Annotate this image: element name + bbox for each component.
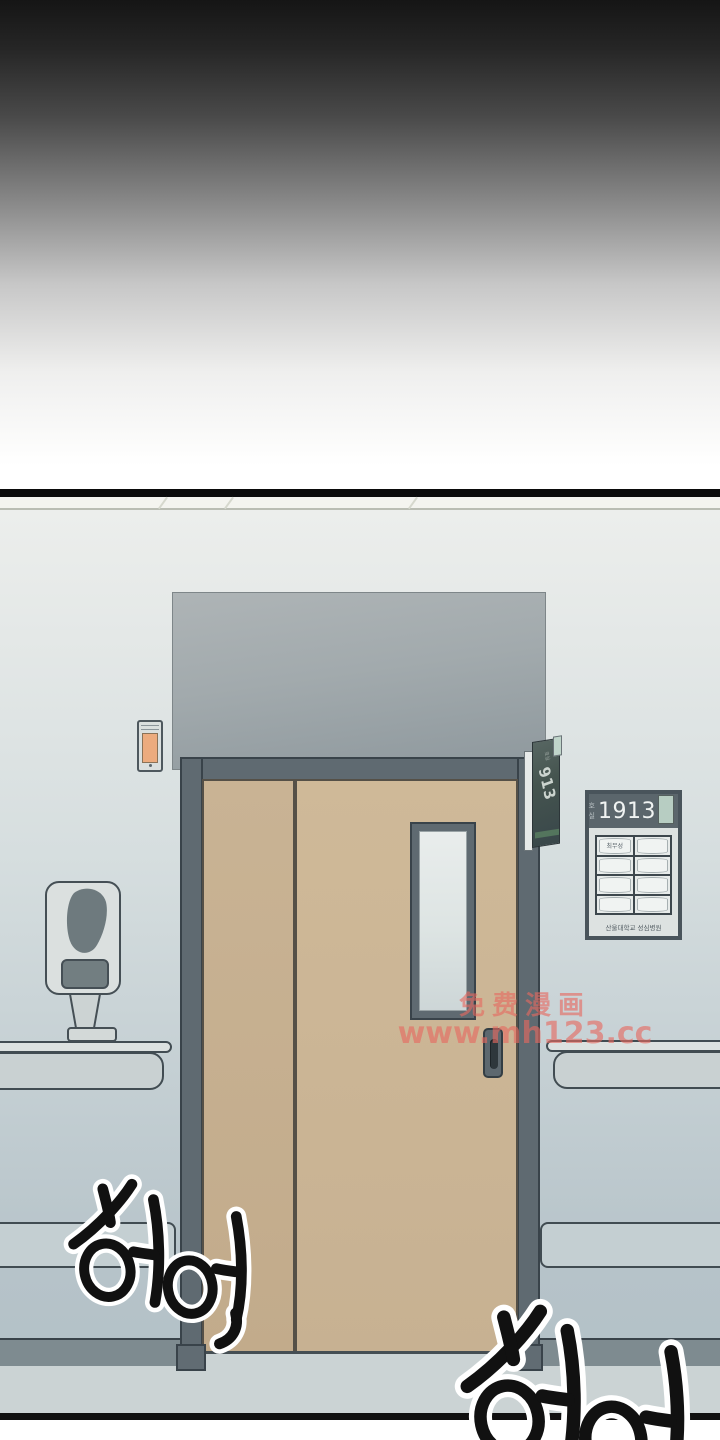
door-window (412, 824, 474, 1018)
switch-indicator-dot (149, 764, 152, 767)
ceiling-seam-mark (158, 497, 168, 510)
room-sign-number: 1913 (598, 799, 656, 824)
name-card-cell (597, 857, 633, 875)
room-sign-slider-tab (658, 795, 674, 824)
top-fade-gradient (0, 0, 720, 490)
name-card: 최무성 (599, 838, 631, 854)
name-card (599, 897, 631, 913)
name-card-cell (635, 857, 671, 875)
room-info-sign: 호실 1913 최무성 산울대학교 성심병원 (585, 790, 682, 940)
name-card (637, 877, 669, 893)
sfx-panting-left: 허억 (58, 1172, 258, 1350)
site-watermark: 免费漫画 www.mh123.cc (375, 993, 675, 1049)
name-card (637, 897, 669, 913)
switch-orange-panel (142, 733, 158, 763)
ceiling-strip (0, 497, 720, 510)
door-side-sign: 호실 913 (524, 742, 564, 858)
name-card-cell (597, 896, 633, 914)
side-sign-number: 913 (535, 764, 560, 803)
ceiling-seam-mark (408, 497, 418, 510)
comic-panel: 호실 913 호실 1913 최무성 산울대학교 성심병원 (0, 0, 720, 1440)
transom-panel (172, 592, 546, 770)
wall-switch[interactable] (137, 720, 163, 772)
watermark-url: www.mh123.cc (375, 1019, 675, 1049)
name-card-cell (635, 876, 671, 894)
name-card-cell (597, 876, 633, 894)
sfx-panting-right: 허억 (448, 1296, 698, 1440)
name-card (599, 858, 631, 874)
panel-divider-bar (0, 489, 720, 497)
name-card-cell (635, 896, 671, 914)
sanitizer-dispenser[interactable] (42, 880, 126, 1046)
handrail-upper-right (553, 1051, 720, 1089)
dispenser-stem (70, 994, 100, 1028)
name-card (637, 838, 669, 854)
dispenser-drip-tray (68, 1028, 116, 1041)
name-card (599, 877, 631, 893)
handrail-upper-left (0, 1052, 164, 1090)
room-sign-name-grid: 최무성 (595, 835, 672, 915)
name-card-cell (635, 837, 671, 855)
side-sign-tab (553, 735, 562, 756)
ceiling-seam-mark (224, 497, 234, 510)
dispenser-push-bar[interactable] (62, 960, 108, 988)
handrail-lower-right (540, 1222, 720, 1268)
name-card-cell: 최무성 (597, 837, 633, 855)
side-sign-green-stripe (535, 829, 559, 839)
room-sign-label: 호실 (589, 801, 595, 821)
name-card (637, 858, 669, 874)
room-sign-footer: 산울대학교 성심병원 (589, 922, 678, 932)
side-sign-face: 호실 913 (532, 738, 560, 848)
switch-vent-lines (141, 725, 159, 730)
